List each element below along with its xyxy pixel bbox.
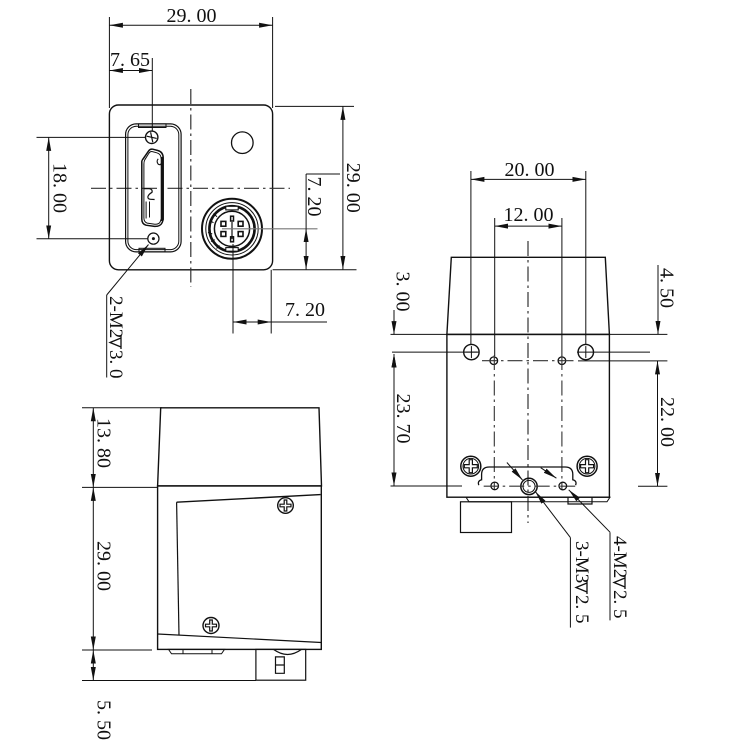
- svg-text:13. 80: 13. 80: [93, 418, 115, 468]
- svg-text:20. 00: 20. 00: [505, 159, 555, 181]
- svg-text:12. 00: 12. 00: [504, 204, 554, 226]
- svg-text:18. 00: 18. 00: [49, 163, 71, 213]
- svg-text:3. 0: 3. 0: [105, 350, 126, 379]
- svg-text:7. 20: 7. 20: [303, 177, 325, 217]
- svg-text:23. 70: 23. 70: [392, 394, 414, 444]
- svg-text:7. 20: 7. 20: [285, 299, 325, 321]
- svg-text:3. 00: 3. 00: [392, 272, 414, 312]
- svg-text:29. 00: 29. 00: [93, 541, 115, 591]
- svg-text:7. 65: 7. 65: [110, 49, 150, 71]
- svg-text:2-M2: 2-M2: [105, 296, 126, 338]
- svg-text:2. 5: 2. 5: [571, 595, 592, 624]
- svg-text:4-M2: 4-M2: [609, 536, 630, 578]
- svg-text:2. 5: 2. 5: [609, 590, 630, 619]
- svg-text:29. 00: 29. 00: [167, 5, 217, 27]
- svg-text:3-M3: 3-M3: [571, 541, 592, 583]
- svg-text:4. 50: 4. 50: [656, 268, 678, 308]
- svg-text:5. 50: 5. 50: [93, 700, 115, 740]
- svg-text:22. 00: 22. 00: [656, 397, 678, 447]
- svg-text:29. 00: 29. 00: [342, 163, 364, 213]
